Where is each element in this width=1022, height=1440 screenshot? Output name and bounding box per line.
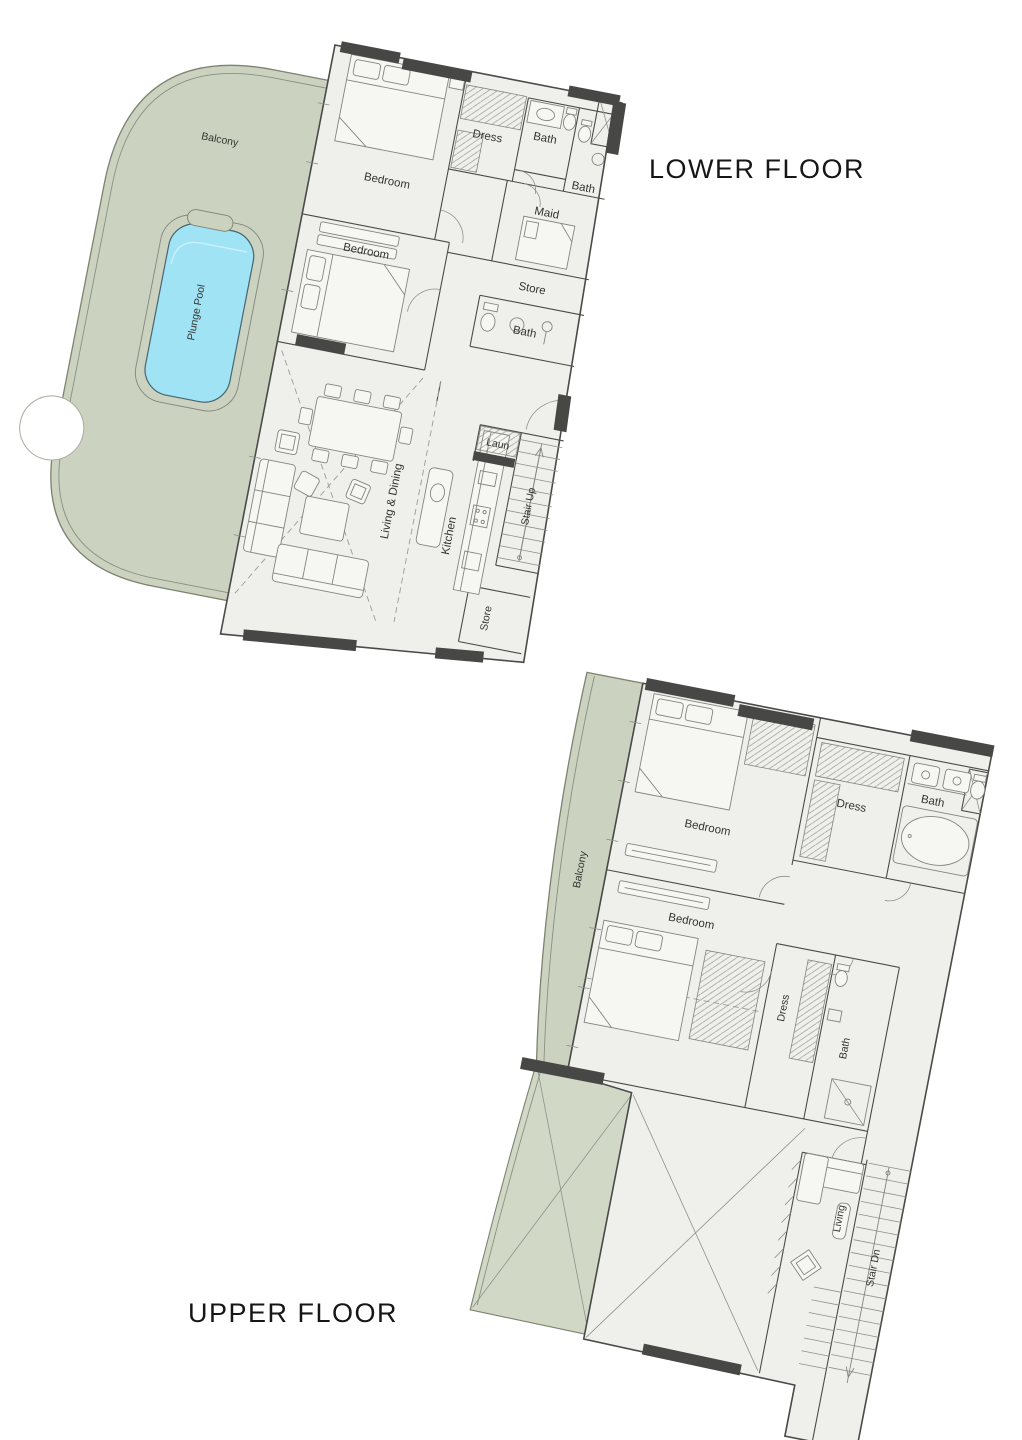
upper-floor-title: UPPER FLOOR	[188, 1298, 398, 1328]
lower-floor-plan: Plunge Pool Balcony	[0, 0, 633, 694]
upper-floor-plan: Balcony Bedroom Dress Bath Bedroom Dress…	[450, 666, 994, 1440]
floorplan-canvas: Plunge Pool Balcony	[0, 0, 1022, 1440]
lower-maid-bed	[515, 216, 574, 269]
lower-floor-title: LOWER FLOOR	[649, 154, 865, 184]
